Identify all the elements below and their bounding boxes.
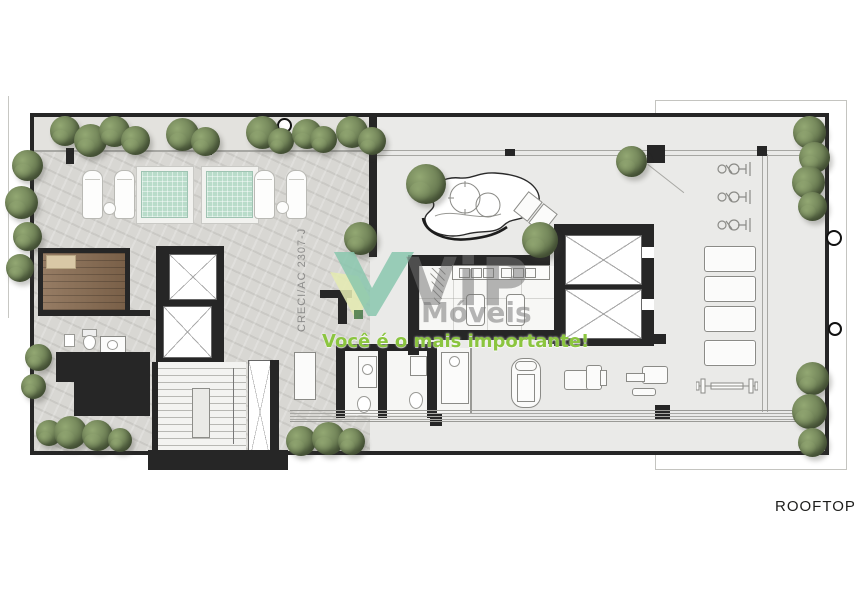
bench-lounger <box>704 246 756 272</box>
treadmill-belt <box>517 374 535 402</box>
watermark-registration: CRECI/AC 2307-J <box>296 237 308 332</box>
floor-name-label: ROOFTOP <box>775 498 856 515</box>
door-marker <box>66 148 74 164</box>
tree-icon <box>21 374 46 399</box>
treadmill-icon <box>511 358 541 408</box>
vip-logo-icon <box>330 246 418 338</box>
stair-rail <box>192 388 210 438</box>
tree-icon <box>310 126 337 153</box>
elevator-shaft <box>565 235 642 285</box>
massage-wall <box>427 342 437 418</box>
glass-railing <box>290 410 822 422</box>
wc-wall <box>336 344 345 418</box>
spin-bike-icon <box>714 156 758 182</box>
column <box>505 149 515 156</box>
spa-pool <box>206 171 253 218</box>
massage-partition <box>470 348 472 414</box>
sun-lounger <box>286 170 307 219</box>
tree-icon <box>12 150 43 181</box>
tree-icon <box>798 428 827 457</box>
sun-lounger <box>114 170 135 219</box>
service-wall-mass <box>56 352 150 382</box>
sun-lounger <box>82 170 103 219</box>
tree-icon <box>796 362 829 395</box>
spin-bike-icon <box>714 212 758 238</box>
sink-basin <box>107 340 118 350</box>
stair-arrow <box>233 368 234 444</box>
vent-circle-icon <box>826 230 842 246</box>
tree-icon <box>13 222 42 251</box>
spa-pool <box>141 171 188 218</box>
service-shaft <box>248 360 272 464</box>
tree-icon <box>121 126 150 155</box>
tree-icon <box>5 186 38 219</box>
tree-icon <box>338 428 365 455</box>
tree-icon <box>358 127 386 155</box>
exercise-machine-icon <box>562 362 606 396</box>
stair-block-base <box>148 450 288 470</box>
weight-bench-icon <box>696 376 758 396</box>
elevator-shaft <box>163 306 212 358</box>
beam-line <box>762 154 768 412</box>
bath-wall <box>38 310 150 316</box>
sun-lounger <box>254 170 275 219</box>
tree-icon <box>798 192 827 221</box>
tree-icon <box>6 254 34 282</box>
wall-basin <box>64 334 75 347</box>
elevator-door <box>642 247 654 258</box>
service-wall-mass <box>74 380 150 416</box>
cable-machine-icon <box>624 364 672 398</box>
treadmill-console <box>515 361 537 371</box>
spin-bike-icon <box>714 184 758 210</box>
sink-counter <box>410 356 427 376</box>
massage-headrest <box>449 356 460 367</box>
elevator-door <box>642 299 654 310</box>
watermark-brand-sub: Móveis <box>421 299 532 327</box>
sauna-bench <box>46 255 76 269</box>
tree-icon <box>268 128 294 154</box>
bench-lounger <box>704 306 756 332</box>
tree-icon <box>792 394 827 429</box>
wc-wall <box>378 344 387 418</box>
tree-icon <box>616 146 647 177</box>
side-table <box>276 201 289 214</box>
sink-basin <box>362 364 373 375</box>
tree-icon <box>191 127 220 156</box>
tree-icon <box>406 164 446 204</box>
column <box>647 145 665 163</box>
bench-lounger <box>704 276 756 302</box>
tree-icon <box>108 428 132 452</box>
rooftop-floorplan: CRECI/AC 2307-J ViP Móveis Você é o mais… <box>0 0 861 600</box>
watermark-slogan: Você é o mais importante! <box>322 331 589 352</box>
column <box>757 146 767 156</box>
side-table <box>103 202 116 215</box>
vent-circle-icon <box>828 322 842 336</box>
elevator-shaft <box>169 254 217 300</box>
bench-lounger <box>704 340 756 366</box>
locker-bench <box>294 352 316 400</box>
tree-icon <box>25 344 52 371</box>
